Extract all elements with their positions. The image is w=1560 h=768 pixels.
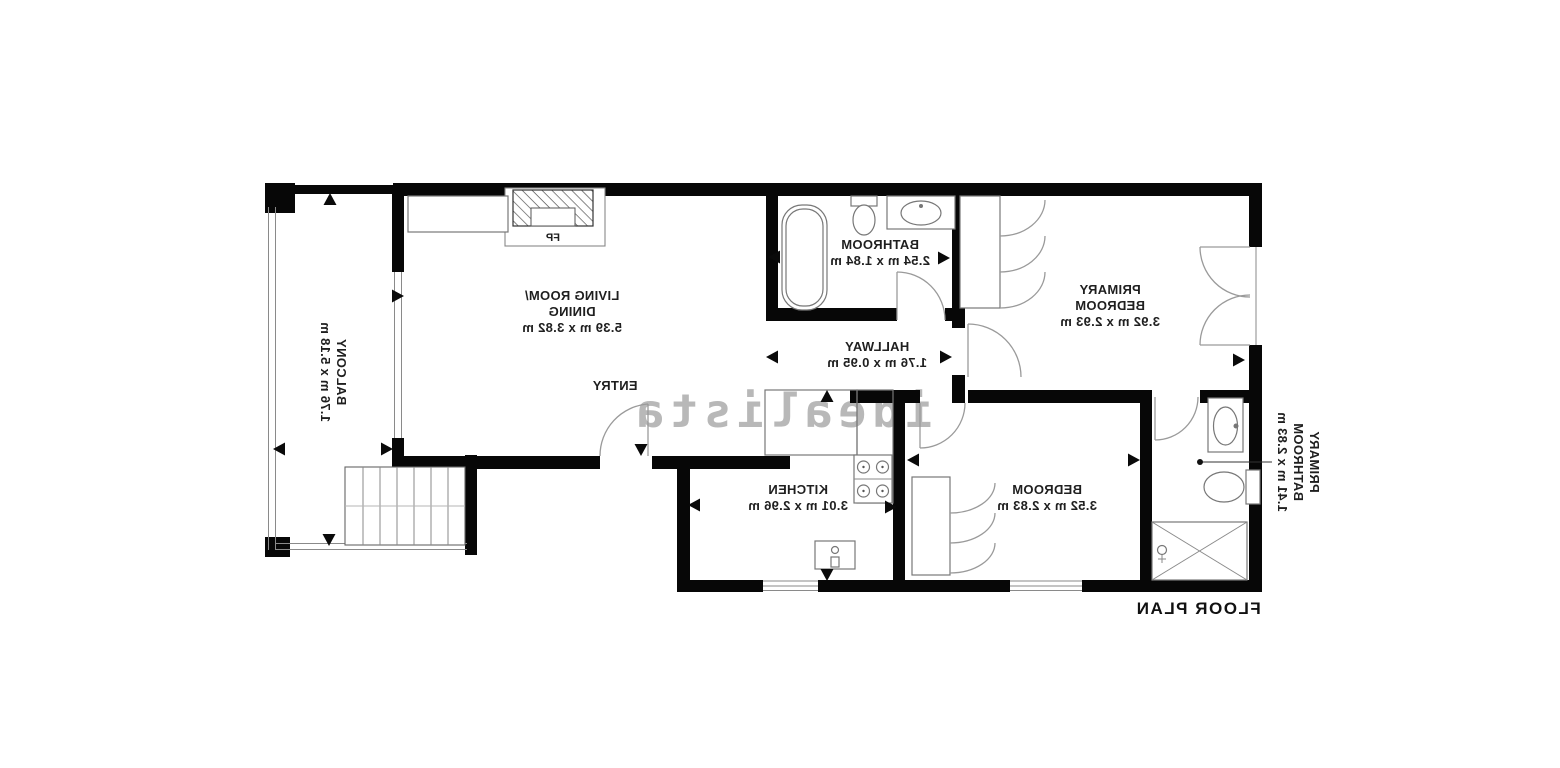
bathroom-dimensions: 2.54 m x 1.84 m [830, 253, 930, 268]
stairs [345, 467, 465, 545]
kitchen-window [763, 578, 818, 594]
bathroom-sink-icon [887, 196, 955, 229]
room-label-bedroom: BEDROOM 3.52 m x 2.83 m [997, 482, 1097, 513]
bedroom-window [1010, 578, 1082, 594]
primary-bathroom-sink-icon [1208, 398, 1243, 452]
primary-bedroom-dimensions: 3.92 m x 2.93 m [1060, 314, 1160, 329]
fireplace-label: FP [546, 232, 560, 244]
balcony-dimensions: 1.76 m x 5.18 m [318, 322, 333, 422]
toilet-icon [851, 196, 877, 235]
entry-label: ENTRY [592, 378, 637, 393]
kitchen-name: KITCHEN [768, 482, 828, 497]
living-dimensions: 5.39 m x 3.82 m [522, 320, 622, 335]
hallway-name: HALLWAY [845, 339, 909, 354]
bathroom-name: BATHROOM [841, 237, 919, 252]
bedroom-dimensions: 3.52 m x 2.83 m [997, 498, 1097, 513]
bathtub-icon [782, 205, 827, 310]
fireplace: FP [505, 188, 605, 246]
kitchen-sink-icon [815, 541, 855, 569]
living-name-line2: DINING [548, 304, 595, 319]
bedroom-name: BEDROOM [1012, 482, 1082, 497]
hallway-dimensions: 1.76 m x 0.95 m [827, 355, 927, 370]
stove-icon [854, 455, 892, 503]
balcony-name: BALCONY [334, 339, 349, 405]
primary-bathroom-dimensions: 1.41 m x 2.83 m [1275, 412, 1290, 512]
floor-plan-image: idealista [0, 0, 1560, 768]
primary-bathroom-name-line2: BATHROOM [1291, 423, 1306, 501]
living-cabinet [408, 196, 508, 232]
plan-title: FLOOR PLAN [1135, 599, 1261, 618]
floor-plan-page: idealista [0, 0, 1560, 768]
living-name-line1: LIVING ROOM/ [525, 288, 620, 303]
primary-bedroom-name-line1: PRIMARY [1079, 282, 1141, 297]
primary-bathroom-name-line1: PRIMARY [1307, 431, 1322, 493]
room-label-bathroom: BATHROOM 2.54 m x 1.84 m [830, 237, 930, 268]
primary-bedroom-name-line2: BEDROOM [1075, 298, 1145, 313]
kitchen-dimensions: 3.01 m x 2.96 m [748, 498, 848, 513]
primary-bathroom-toilet-icon [1204, 470, 1260, 504]
